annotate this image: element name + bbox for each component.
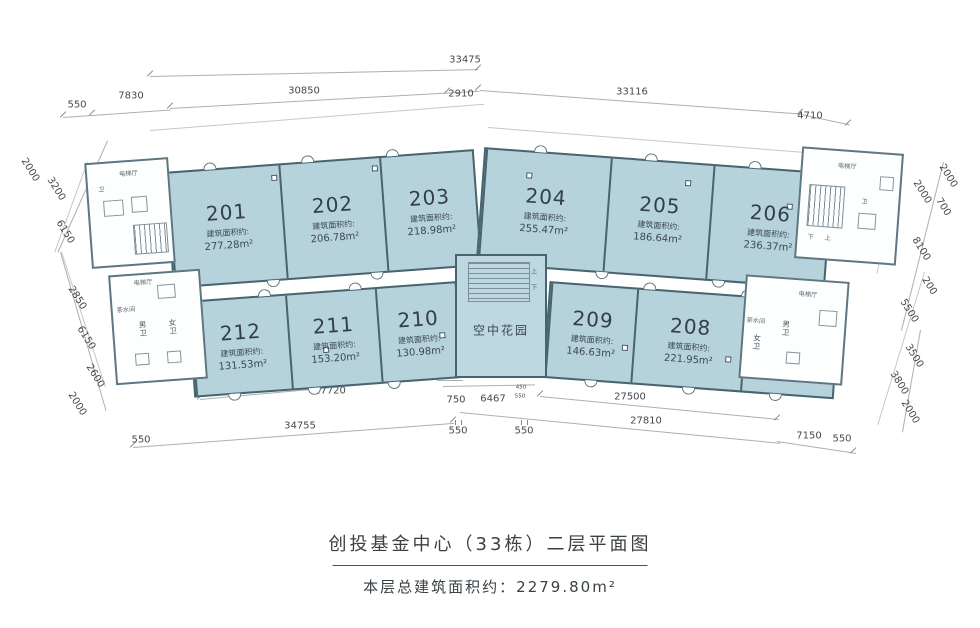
dim-label-right: 3500 [903, 342, 926, 369]
room-area-label: 建筑面积约: [220, 343, 263, 358]
wing-upper-left: 201 建筑面积约: 277.28m² 202 建筑面积约: 206.78m² … [165, 149, 483, 288]
room-area-value: 153.20m² [311, 351, 360, 366]
core-upper-right: 电梯厅 卫 下 上 [794, 146, 904, 265]
female-wc-label: 女卫 [168, 319, 177, 335]
door-arc [370, 272, 383, 280]
room-number: 202 [311, 192, 354, 217]
door-arc [535, 145, 548, 153]
dim-label-right: 2000 [911, 178, 934, 205]
fixture [157, 283, 176, 298]
dim-label-left: 2000 [66, 390, 89, 417]
room-205: 205 建筑面积约: 186.64m² [602, 158, 714, 278]
dim-label-34755: 34755 [284, 421, 316, 432]
room-area-value: 221.95m² [664, 352, 713, 367]
room-number: 208 [669, 314, 712, 339]
dim-label-right: 8100 [910, 235, 933, 262]
door-arc [643, 282, 656, 290]
dim-label-550: 550 [131, 435, 150, 446]
door-arc [387, 382, 400, 390]
elevator-shaft [880, 176, 895, 191]
fixture [167, 351, 182, 364]
room-area-value: 186.64m² [633, 231, 682, 246]
stair-down-label: 下 [531, 282, 537, 291]
stairs [806, 184, 845, 229]
stair-up-label: 上 [531, 266, 537, 275]
dim-label-27810: 27810 [630, 416, 662, 427]
title-block: 创投基金中心（33栋）二层平面图 本层总建筑面积约：2279.80m² [329, 530, 652, 597]
room-area-label: 建筑面积约: [398, 330, 441, 345]
dim-label-33475: 33475 [449, 55, 481, 66]
room-number: 201 [205, 199, 248, 224]
door-arc [595, 272, 608, 280]
room-area-label: 建筑面积约: [523, 208, 566, 223]
dim-label-6467: 6467 [480, 394, 505, 405]
stairs [132, 223, 168, 255]
fixture [786, 352, 801, 365]
door-arc [300, 155, 313, 163]
dim-tick [527, 420, 528, 425]
dim-line [460, 412, 781, 444]
dim-label-right: 200 [919, 275, 938, 297]
dim-label-left: 2850 [66, 284, 89, 311]
stair-down-label: 下 [807, 231, 814, 241]
door-arc [228, 393, 241, 401]
floor-plan: 33475 550 7830 30850 2910 33116 4710 200… [0, 0, 980, 628]
plan-total-area: 本层总建筑面积约：2279.80m² [329, 576, 652, 597]
dim-label-7830: 7830 [118, 91, 143, 102]
canopy-outline [150, 104, 484, 131]
sky-garden: 上 下 空中花园 [455, 254, 547, 378]
room-area-label: 建筑面积约: [312, 216, 355, 231]
elevator-hall-label: 电梯厅 [133, 276, 152, 287]
core-lower-right: 电梯厅 茶水间 男卫 女卫 [738, 274, 849, 385]
core-upper-left: 电梯厅 卫 [84, 157, 176, 269]
room-number: 204 [525, 184, 568, 209]
dim-line [63, 109, 171, 118]
room-area-label: 建筑面积约: [313, 337, 356, 352]
room-number: 203 [408, 185, 451, 210]
stair-up-label: 上 [825, 232, 832, 242]
dim-line [150, 69, 478, 77]
door-arc [203, 162, 216, 170]
fixture [135, 353, 150, 366]
core-lower-left: 电梯厅 茶水间 男卫 女卫 [108, 269, 208, 385]
dim-label-450: 450 [516, 384, 527, 390]
room-area-value: 206.78m² [310, 230, 359, 245]
dim-line [437, 380, 463, 381]
male-wc-label: 男卫 [781, 321, 790, 337]
elevator-shaft [130, 195, 147, 212]
dim-label-right: 2000 [899, 398, 922, 425]
female-wc-label: 女卫 [752, 335, 761, 351]
door-arc [682, 387, 695, 395]
dim-tick [461, 420, 462, 425]
door-arc [645, 153, 658, 161]
wc-label: 卫 [861, 196, 868, 206]
dim-label-33116: 33116 [616, 87, 648, 98]
dim-label-right: 5500 [898, 297, 921, 324]
dim-label-550: 550 [832, 434, 851, 445]
room-211: 211 建筑面积约: 153.20m² [285, 289, 382, 388]
elevator-hall-label: 电梯厅 [838, 160, 857, 171]
room-210: 210 建筑面积约: 130.98m² [375, 283, 461, 382]
wc-label: 卫 [97, 184, 104, 194]
room-number: 205 [639, 192, 682, 217]
dim-line [170, 91, 480, 109]
stairs [468, 262, 530, 302]
door-arc [258, 289, 271, 297]
elevator-shaft [857, 213, 876, 230]
tea-room-label: 茶水间 [746, 315, 765, 326]
dim-label-right: 700 [933, 196, 952, 218]
room-204: 204 建筑面积约: 255.47m² [478, 149, 610, 271]
room-area-label: 建筑面积约: [206, 224, 249, 239]
plan-title: 创投基金中心（33栋）二层平面图 [329, 530, 652, 556]
door-arc [348, 282, 361, 290]
room-area-label: 建筑面积约: [668, 338, 711, 353]
room-area-value: 218.98m² [407, 223, 456, 238]
room-number: 212 [219, 319, 262, 344]
room-area-value: 131.53m² [218, 358, 267, 373]
room-area-label: 建筑面积约: [637, 217, 680, 232]
room-201: 201 建筑面积约: 277.28m² [167, 166, 287, 287]
door-arc [748, 161, 761, 169]
room-area-value: 277.28m² [204, 238, 253, 253]
dim-label-left: 2600 [84, 362, 107, 389]
room-area-value: 236.37m² [743, 239, 792, 254]
dim-label-left: 3200 [45, 175, 68, 202]
dim-label-550: 550 [448, 426, 467, 437]
room-208: 208 建筑面积约: 221.95m² [631, 290, 747, 391]
room-area-value: 130.98m² [396, 345, 445, 360]
room-number: 211 [312, 312, 355, 337]
elevator-shaft [818, 310, 837, 327]
door-arc [386, 149, 399, 157]
room-number: 206 [749, 200, 792, 225]
room-area-label: 建筑面积约: [570, 331, 613, 346]
dim-label-550: 550 [515, 393, 526, 399]
room-area-value: 255.47m² [519, 222, 568, 237]
door-arc [267, 280, 280, 288]
dim-label-left: 6150 [75, 324, 98, 351]
wing-lower-left: 212 建筑面积约: 131.53m² 211 建筑面积约: 153.20m² … [187, 281, 463, 398]
dim-label-30850: 30850 [288, 86, 320, 97]
title-divider [333, 565, 648, 566]
dim-label-750: 750 [446, 395, 465, 406]
door-arc [768, 393, 781, 401]
room-203: 203 建筑面积约: 218.98m² [379, 151, 480, 271]
room-209: 209 建筑面积约: 146.63m² [545, 283, 638, 382]
male-wc-label: 男卫 [138, 321, 147, 337]
dim-label-left: 2000 [19, 156, 42, 183]
dim-tick [521, 420, 522, 425]
door-arc [712, 280, 725, 288]
dim-label-4710: 4710 [797, 111, 822, 122]
dim-label-550: 550 [514, 426, 533, 437]
elevator-hall-label: 电梯厅 [798, 288, 817, 299]
dim-label-27500: 27500 [614, 392, 646, 403]
elevator-hall-label: 电梯厅 [119, 167, 138, 178]
room-area-label: 建筑面积约: [747, 225, 790, 240]
tea-room-label: 茶水间 [116, 303, 135, 314]
room-number: 210 [397, 306, 440, 331]
dim-label-550: 550 [67, 100, 86, 111]
door-arc [584, 380, 597, 388]
elevator-shaft [103, 199, 124, 216]
dim-label-2910: 2910 [448, 89, 473, 100]
room-area-label: 建筑面积约: [409, 209, 452, 224]
room-202: 202 建筑面积约: 206.78m² [278, 158, 387, 278]
room-number: 209 [572, 306, 615, 331]
sky-garden-label: 空中花园 [473, 322, 529, 339]
dim-label-7150: 7150 [796, 431, 821, 442]
dim-tick [455, 420, 456, 425]
room-area-value: 146.63m² [566, 345, 615, 360]
